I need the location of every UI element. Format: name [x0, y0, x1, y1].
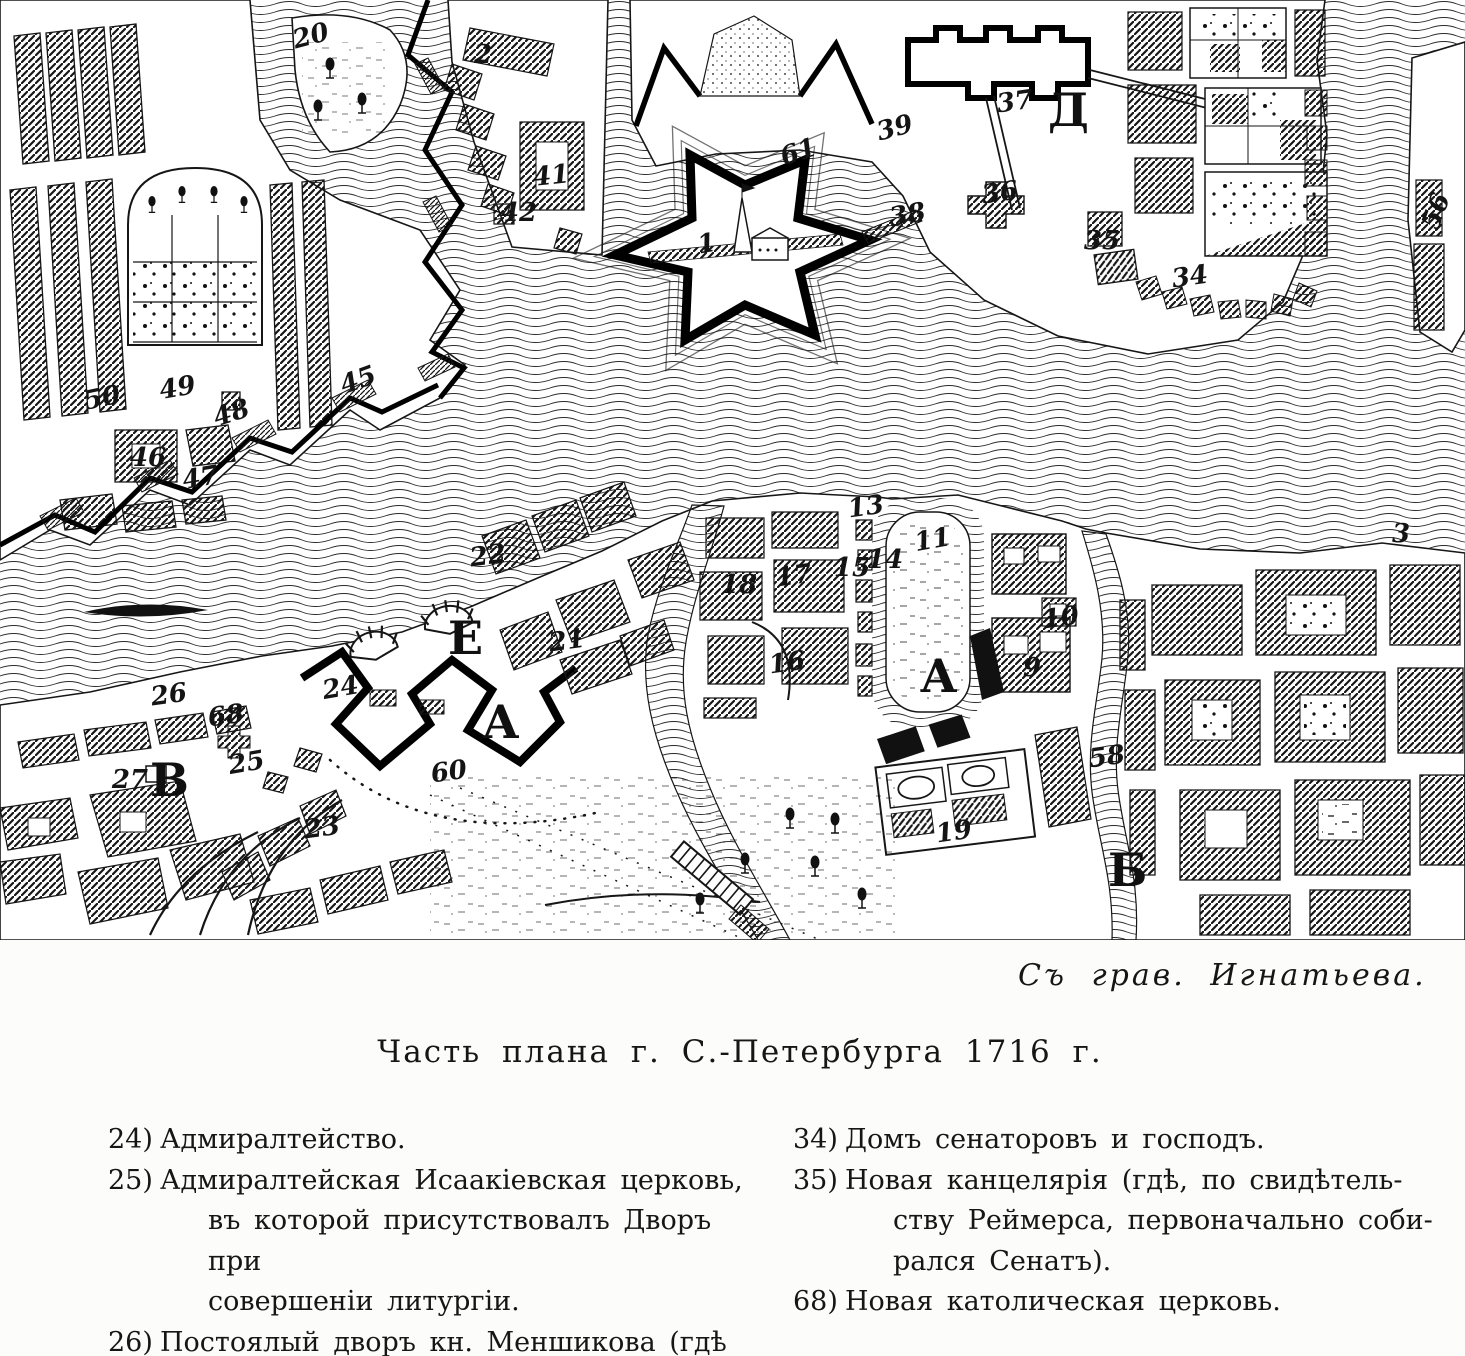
legend-item-line: ству Реймерса, первоначально соби- [845, 1201, 1453, 1242]
map-label: 17 [774, 559, 814, 594]
legend-item-line: Новая канцелярія (гдѣ, по свидѣтель- [845, 1161, 1453, 1202]
legend-item-24: 24) Адмиралтейство. [108, 1120, 748, 1161]
map-label: 34 [1170, 260, 1210, 295]
legend-item-number: 25) [108, 1161, 160, 1323]
map-label: А [482, 695, 520, 749]
map-label: Е [448, 611, 483, 665]
legend-item-line: рался Сенатъ). [845, 1242, 1453, 1283]
map-label: 18 [721, 570, 757, 600]
legend-item-line: Домъ сенаторовъ и господъ. [845, 1120, 1453, 1161]
map-label: 60 [429, 755, 469, 790]
island-trees-detail [302, 42, 390, 134]
legend-item-line: Адмиралтейство. [160, 1120, 748, 1161]
legend-item-number: 26) [108, 1323, 160, 1356]
legend-item-number: 24) [108, 1120, 160, 1161]
map-label: 19 [934, 815, 974, 850]
map-label: 11 [912, 522, 953, 558]
map-label: 16 [767, 646, 807, 681]
map-label: 15 [834, 553, 870, 583]
map-label: А [920, 649, 958, 703]
map-label: 35 [1084, 226, 1120, 256]
map-label: 26 [148, 678, 189, 713]
legend-item-26: 26) Постоялый дворъ кн. Меншикова (гдѣ н… [108, 1323, 748, 1356]
map-label: 36 [980, 176, 1020, 211]
map-label: 41 [532, 159, 571, 193]
legend-item-25: 25) Адмиралтейская Исаакіевская церковь,… [108, 1161, 748, 1323]
map-label: 58 [1087, 740, 1127, 775]
map-label: 22 [467, 539, 508, 574]
legend-item-line: совершеніи литургіи. [160, 1282, 748, 1323]
map-label: 14 [867, 545, 903, 575]
map-label: 3 [1392, 519, 1410, 549]
legend-item-35: 35) Новая канцелярія (гдѣ, по свидѣтель-… [793, 1161, 1453, 1283]
legend-column-left: 24) Адмиралтейство. 25) Адмиралтейская И… [108, 1120, 748, 1356]
map-label: 25 [225, 745, 267, 781]
map-label: 49 [157, 370, 198, 406]
legend-item-number: 34) [793, 1120, 845, 1161]
map-label: 37 [995, 85, 1035, 120]
map-label: 23 [301, 811, 342, 846]
legend-item-number: 68) [793, 1282, 845, 1323]
engraver-attribution: Съ грав. Игнатьева. [1018, 958, 1427, 993]
legend-item-34: 34) Домъ сенаторовъ и господъ. [793, 1120, 1453, 1161]
map-label: В [150, 753, 189, 807]
legend-column-right: 34) Домъ сенаторовъ и господъ. 35) Новая… [793, 1120, 1453, 1323]
map-label: 46 [130, 443, 166, 473]
map-label: 38 [887, 197, 928, 233]
map-label: Б [1108, 843, 1147, 897]
map-label: 21 [546, 624, 587, 659]
map-label: 42 [501, 198, 537, 228]
map-label: 10 [1041, 601, 1081, 636]
legend-item-line: Адмиралтейская Исаакіевская церковь, [160, 1161, 748, 1202]
meadow [430, 772, 900, 934]
legend-item-line: въ которой присутствовалъ Дворъ при [160, 1201, 748, 1282]
map-label: 47 [180, 460, 221, 496]
map-label: 24 [319, 670, 361, 706]
legend-item-number: 35) [793, 1161, 845, 1283]
map-label: 13 [846, 490, 886, 525]
legend-item-line: Постоялый дворъ кн. Меншикова (гдѣ [160, 1323, 748, 1356]
legend-item-68: 68) Новая католическая церковь. [793, 1282, 1453, 1323]
map-label: 9 [1023, 653, 1041, 683]
map-label: 27 [111, 765, 148, 795]
map-label: 68 [206, 699, 246, 734]
map-engraving: ДЕАВАБ2024142504948464745161393837363534… [0, 0, 1465, 940]
map-label: 2 [473, 40, 492, 70]
scanned-page: ДЕАВАБ2024142504948464745161393837363534… [0, 0, 1465, 1356]
legend-item-line: Новая католическая церковь. [845, 1282, 1453, 1323]
figure-title: Часть плана г. С.-Петербурга 1716 г. [0, 1034, 1465, 1070]
formal-garden [128, 168, 262, 345]
map-label: Д [1048, 83, 1089, 137]
